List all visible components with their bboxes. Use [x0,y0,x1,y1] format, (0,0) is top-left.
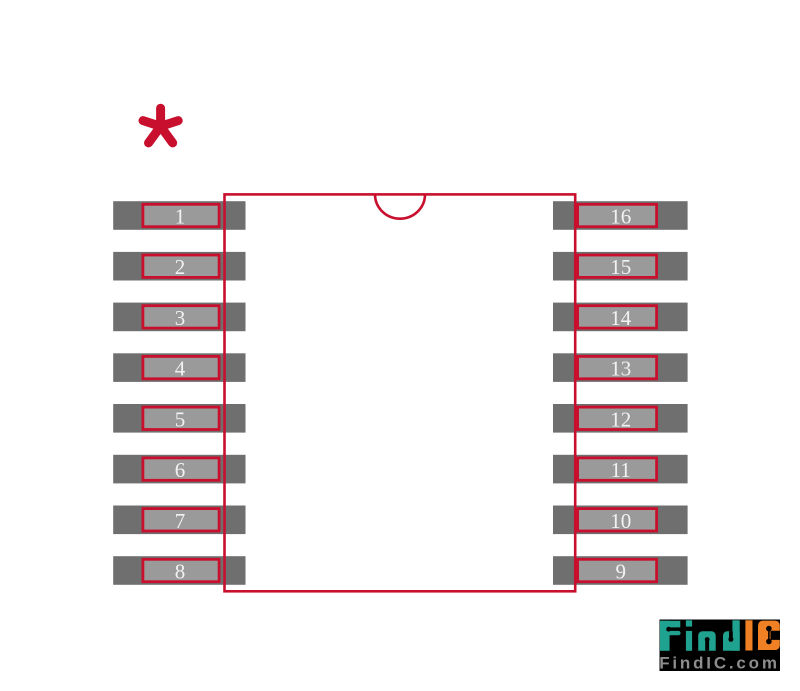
svg-text:12: 12 [610,407,631,431]
svg-text:3: 3 [175,306,186,330]
svg-text:5: 5 [175,407,186,431]
svg-text:FindIC.com: FindIC.com [659,653,780,672]
svg-text:8: 8 [175,560,186,584]
svg-text:13: 13 [610,357,631,381]
svg-text:10: 10 [610,509,631,533]
svg-text:1: 1 [175,205,186,229]
svg-text:7: 7 [175,509,186,533]
svg-text:6: 6 [175,458,186,482]
svg-text:11: 11 [611,458,631,482]
svg-text:4: 4 [175,357,186,381]
svg-text:9: 9 [615,560,626,584]
svg-text:14: 14 [610,306,632,330]
svg-text:16: 16 [610,205,631,229]
svg-text:2: 2 [175,255,186,279]
svg-text:15: 15 [610,255,631,279]
